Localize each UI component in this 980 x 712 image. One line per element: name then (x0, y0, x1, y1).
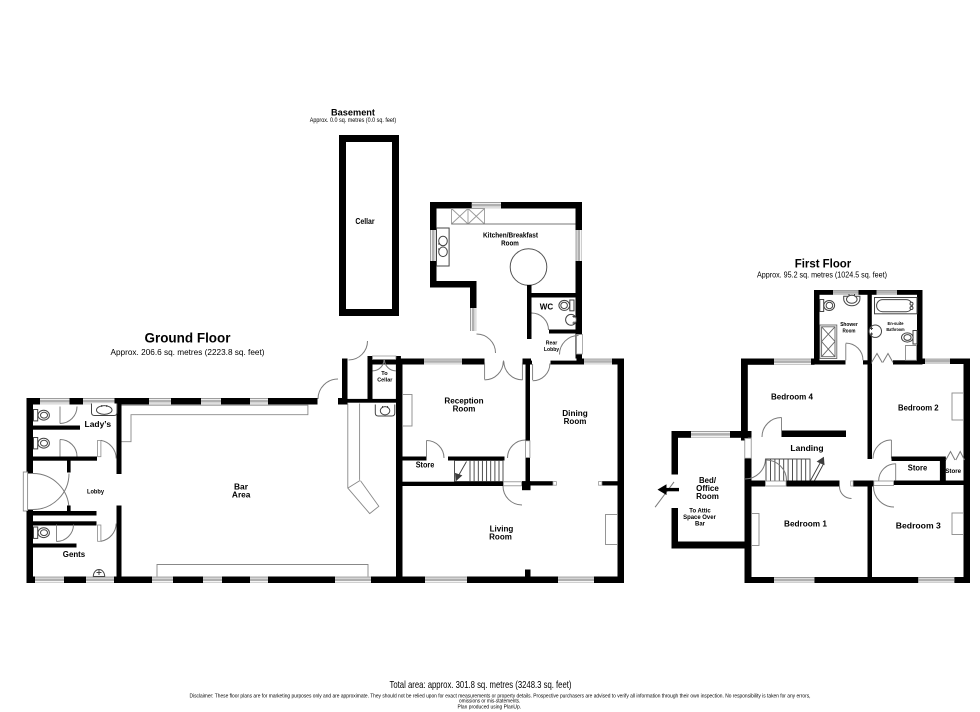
svg-text:Gents: Gents (63, 550, 86, 559)
svg-text:Shower: Shower (840, 322, 858, 328)
svg-text:Ground Floor: Ground Floor (145, 330, 232, 346)
svg-text:Room: Room (501, 239, 519, 248)
svg-text:Approx. 95.2 sq. metres (1024.: Approx. 95.2 sq. metres (1024.5 sq. feet… (757, 271, 887, 280)
svg-text:Bar: Bar (695, 522, 706, 528)
svg-text:Room: Room (696, 492, 719, 501)
svg-text:En-suite: En-suite (888, 321, 904, 327)
svg-text:Bedroom 2: Bedroom 2 (898, 404, 939, 413)
svg-text:Space Over: Space Over (683, 515, 716, 521)
svg-text:Total area: approx. 301.8 sq.: Total area: approx. 301.8 sq. metres (32… (390, 679, 572, 691)
svg-text:Room: Room (843, 328, 856, 334)
svg-text:Bedroom 3: Bedroom 3 (896, 522, 942, 531)
svg-text:omissions or mis-statements.: omissions or mis-statements. (459, 698, 520, 704)
svg-text:Approx. 0.0 sq. metres (0.0 sq: Approx. 0.0 sq. metres (0.0 sq. feet) (310, 117, 397, 124)
svg-text:Lobby: Lobby (544, 347, 560, 353)
svg-text:Cellar: Cellar (377, 378, 393, 384)
svg-text:Room: Room (489, 533, 512, 542)
svg-text:Lady’s: Lady’s (85, 419, 112, 429)
svg-text:Landing: Landing (790, 443, 823, 453)
svg-text:WC: WC (540, 302, 553, 312)
svg-text:Room: Room (564, 417, 587, 426)
svg-text:Bedroom 4: Bedroom 4 (771, 393, 814, 402)
svg-text:Store: Store (908, 464, 928, 473)
svg-text:Rear: Rear (546, 341, 558, 347)
svg-text:Plan produced using PlanUp.: Plan produced using PlanUp. (458, 705, 522, 711)
svg-text:To: To (381, 371, 388, 377)
svg-text:Area: Area (232, 491, 251, 500)
svg-text:First Floor: First Floor (795, 259, 852, 271)
svg-text:Room: Room (453, 405, 476, 414)
svg-text:Store: Store (416, 461, 435, 470)
svg-text:Bathroom: Bathroom (886, 327, 904, 333)
svg-text:Lobby: Lobby (87, 490, 105, 496)
svg-text:Store: Store (945, 468, 961, 475)
svg-text:Approx. 206.6 sq. metres (2223: Approx. 206.6 sq. metres (2223.8 sq. fee… (111, 348, 265, 357)
svg-text:Bedroom 1: Bedroom 1 (784, 520, 828, 529)
svg-text:Cellar: Cellar (355, 217, 374, 226)
svg-text:To Attic: To Attic (689, 509, 711, 515)
